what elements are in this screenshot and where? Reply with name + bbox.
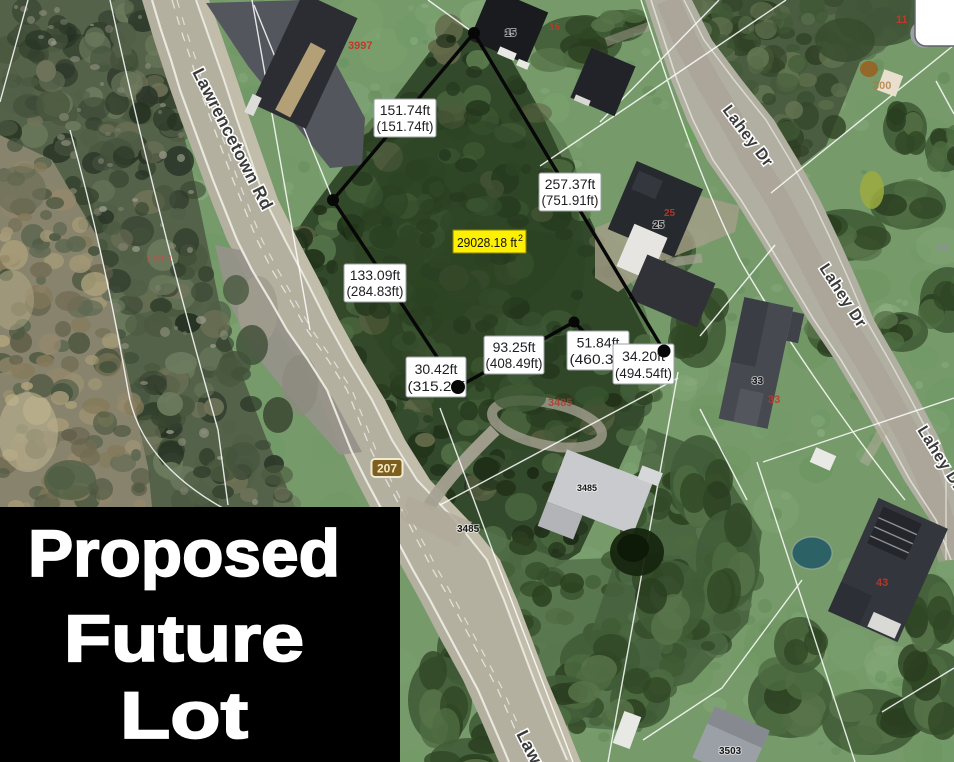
svg-text:(751.91ft): (751.91ft) (542, 192, 599, 208)
svg-text:11: 11 (896, 14, 908, 26)
svg-text:29028.18 ft: 29028.18 ft (457, 235, 517, 250)
svg-text:133.09ft: 133.09ft (350, 267, 401, 283)
svg-text:207: 207 (377, 462, 397, 476)
svg-text:Future: Future (64, 601, 304, 675)
svg-text:(284.83ft): (284.83ft) (347, 283, 404, 299)
svg-text:Proposed: Proposed (28, 516, 340, 590)
svg-text:(151.74ft): (151.74ft) (377, 118, 434, 134)
svg-text:(494.54ft): (494.54ft) (615, 365, 672, 381)
svg-text:93.25ft: 93.25ft (493, 339, 536, 355)
svg-text:30.42ft: 30.42ft (415, 361, 458, 377)
svg-text:3485: 3485 (457, 524, 480, 535)
svg-text:(408.49ft): (408.49ft) (486, 355, 543, 371)
svg-text:25: 25 (664, 208, 676, 219)
svg-text:2: 2 (518, 233, 523, 243)
svg-text:LOT 1: LOT 1 (147, 254, 173, 264)
svg-text:3503: 3503 (719, 746, 742, 757)
svg-text:151.74ft: 151.74ft (380, 102, 431, 118)
svg-text:3485: 3485 (548, 397, 572, 409)
svg-text:34: 34 (936, 242, 949, 254)
svg-text:15: 15 (549, 22, 561, 33)
svg-text:3997: 3997 (348, 40, 372, 52)
svg-text:33: 33 (768, 394, 780, 406)
svg-text:257.37ft: 257.37ft (545, 176, 596, 192)
svg-text:25: 25 (653, 220, 665, 231)
svg-text:43: 43 (876, 577, 888, 589)
svg-text:Lot: Lot (120, 678, 248, 752)
svg-text:15: 15 (505, 28, 517, 39)
svg-text:300: 300 (873, 80, 891, 92)
svg-text:3485: 3485 (577, 483, 597, 493)
svg-text:33: 33 (752, 376, 764, 387)
